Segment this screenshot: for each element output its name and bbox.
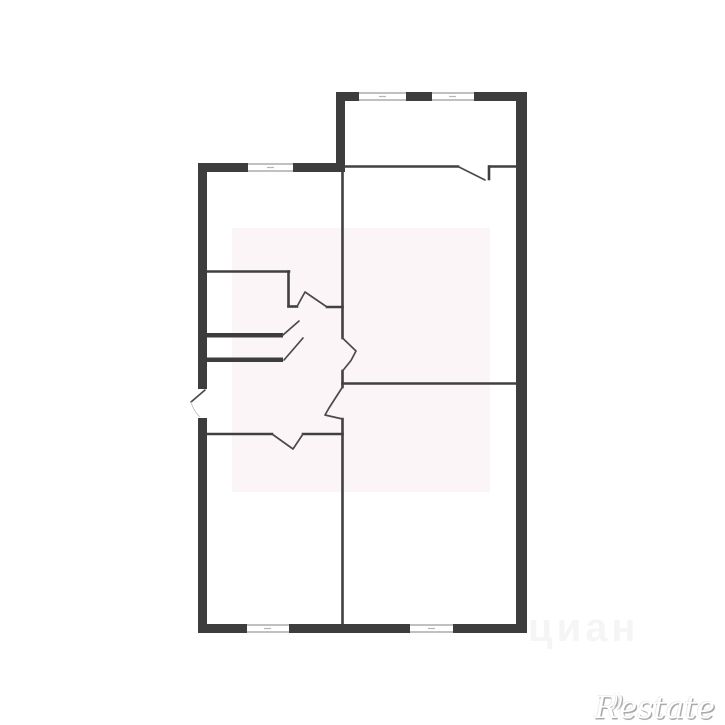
entrance-door-arc (191, 402, 200, 417)
door-swing-icon (458, 167, 485, 181)
window-icon (248, 163, 293, 172)
floor-plan: циан (0, 0, 725, 725)
wall (516, 92, 527, 633)
window-icon (432, 92, 474, 101)
floorplan-image: циан R))estate (0, 0, 725, 725)
wall (198, 418, 207, 633)
entrance-door-swing-icon (191, 390, 205, 402)
cian-watermark-text: циан (528, 606, 640, 650)
window-icon (410, 624, 453, 633)
closet-shelf (207, 333, 283, 338)
wall (198, 163, 207, 389)
window-icon (247, 624, 289, 633)
window-icon (359, 92, 406, 101)
wall (336, 92, 345, 172)
closet-shelf (207, 358, 283, 363)
